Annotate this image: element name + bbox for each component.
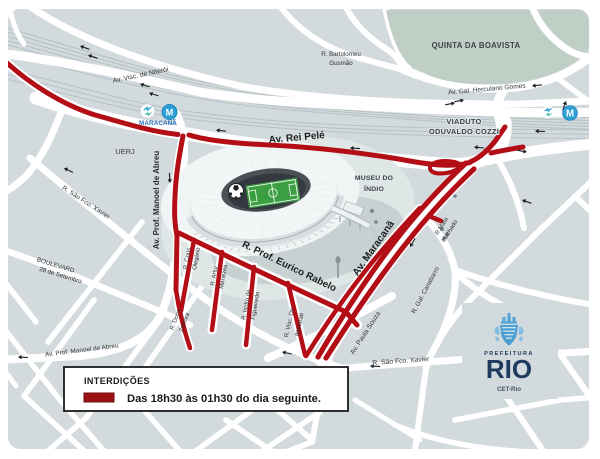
- svg-text:ODUVALDO COZZI: ODUVALDO COZZI: [429, 127, 499, 136]
- svg-text:M: M: [566, 109, 574, 120]
- svg-text:INTERDIÇÕES: INTERDIÇÕES: [84, 376, 150, 386]
- svg-text:QUINTA DA BOAVISTA: QUINTA DA BOAVISTA: [432, 41, 521, 50]
- svg-text:VIADUTO: VIADUTO: [446, 117, 481, 126]
- svg-text:MARACANÃ: MARACANÃ: [139, 118, 177, 127]
- svg-text:Gusmão: Gusmão: [329, 60, 353, 67]
- svg-text:M: M: [166, 108, 174, 118]
- svg-text:RIO: RIO: [486, 354, 532, 384]
- svg-text:Av. Prof. Manoel de Abreu: Av. Prof. Manoel de Abreu: [152, 151, 161, 249]
- svg-text:MUSEU DO: MUSEU DO: [355, 175, 393, 182]
- svg-text:CET-Rio: CET-Rio: [497, 386, 521, 393]
- svg-text:UERJ: UERJ: [115, 147, 135, 156]
- svg-text:ÍNDIO: ÍNDIO: [364, 184, 384, 193]
- svg-text:Das 18h30 às 01h30 do dia segu: Das 18h30 às 01h30 do dia seguinte.: [127, 393, 321, 405]
- svg-text:R. Bartolomeu: R. Bartolomeu: [321, 51, 361, 58]
